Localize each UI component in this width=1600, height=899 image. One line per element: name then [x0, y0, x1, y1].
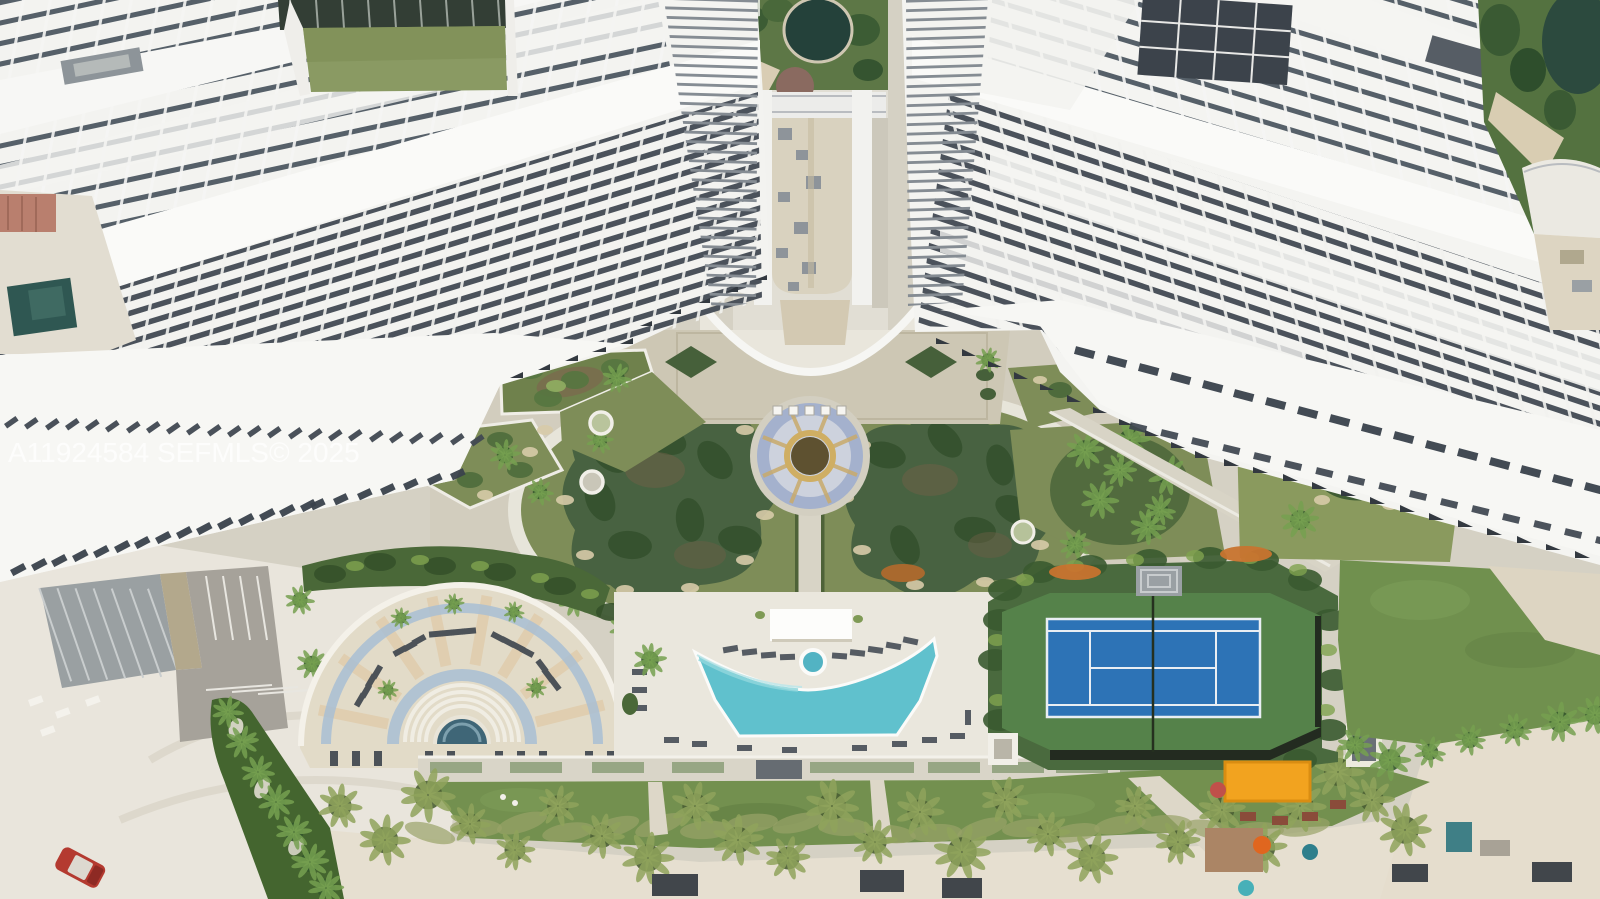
svg-text:A11924584 SEFMLS© 2025: A11924584 SEFMLS© 2025: [8, 437, 360, 468]
